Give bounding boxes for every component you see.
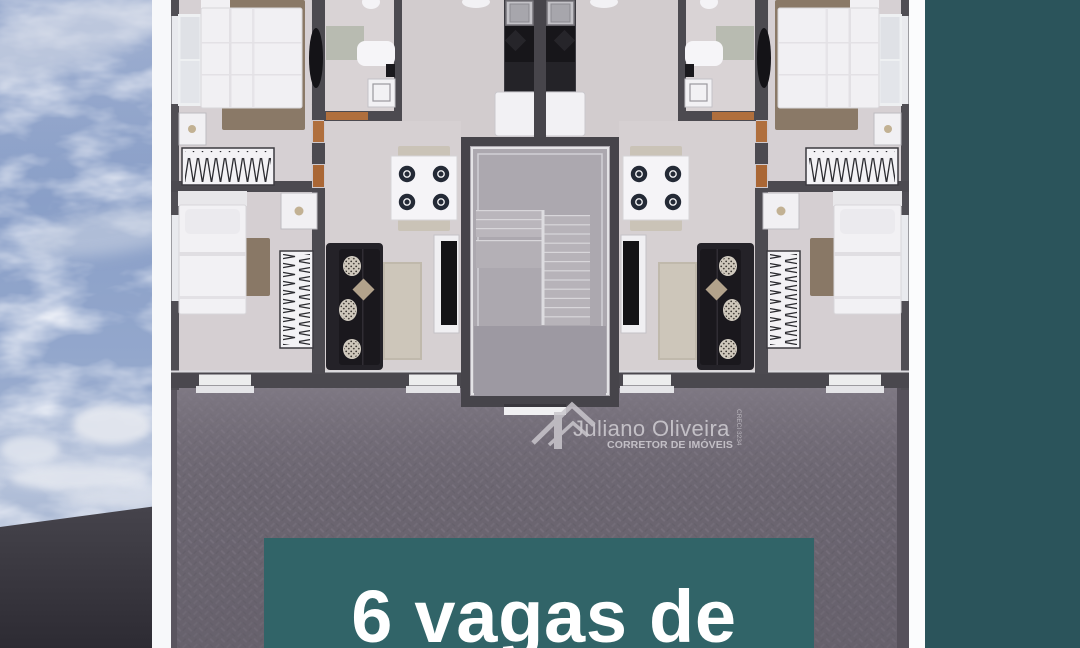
svg-text:CORRETOR DE IMÓVEIS: CORRETOR DE IMÓVEIS bbox=[607, 438, 733, 451]
svg-text:6 vagas de: 6 vagas de bbox=[351, 575, 736, 648]
svg-text:Juliano Oliveira: Juliano Oliveira bbox=[573, 416, 730, 441]
svg-text:CRECI 3234: CRECI 3234 bbox=[735, 409, 742, 446]
